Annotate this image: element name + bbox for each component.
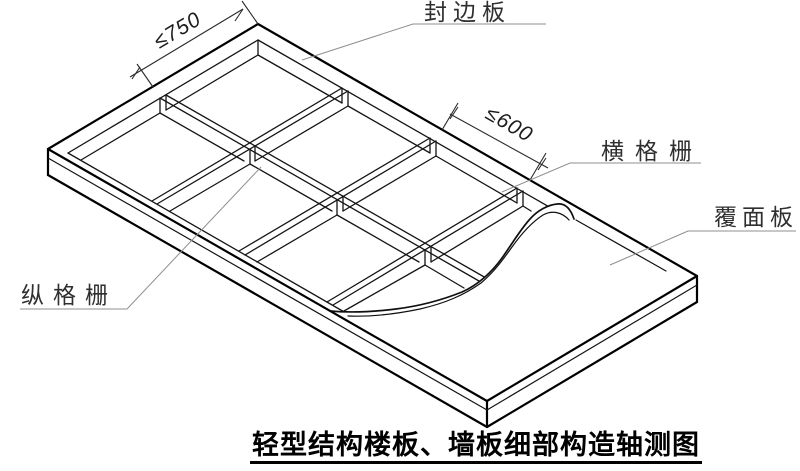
transverse-joist-2-top [239,138,436,255]
leader-edge-board [302,24,546,60]
drawing-title: 轻型结构楼板、墙板细部构造轴测图 [252,429,700,460]
dim600-text: ≤600 [482,102,537,147]
label-cover-panel: 覆面板 [714,204,798,230]
cover-panel-face [330,204,697,401]
slab-outline [48,24,697,427]
transverse-joist-1-foot [170,106,348,211]
label-longitudinal-joist: 纵格栅 [21,282,117,308]
head-board-floor-line [81,55,258,160]
transverse-joist-2-foot [257,156,436,262]
label-edge-board: 封边板 [424,0,511,25]
dim750-text: ≤750 [150,8,205,54]
dimension-cell-width: ≤750 [130,1,258,87]
right-board-floor-line [258,55,531,211]
drawing-canvas: ≤750 ≤600 封边板 横格栅 覆面板 纵格栅 轻型结构楼板、墙板细部构造轴… [0,0,800,471]
label-transverse-joist: 横格栅 [601,138,703,164]
title-underline [250,461,702,464]
longitudinal-joist-foot [160,113,464,288]
axonometric-diagram: ≤750 ≤600 封边板 横格栅 覆面板 纵格栅 轻型结构楼板、墙板细部构造轴… [0,0,800,471]
transverse-joist-1-top [152,88,348,204]
